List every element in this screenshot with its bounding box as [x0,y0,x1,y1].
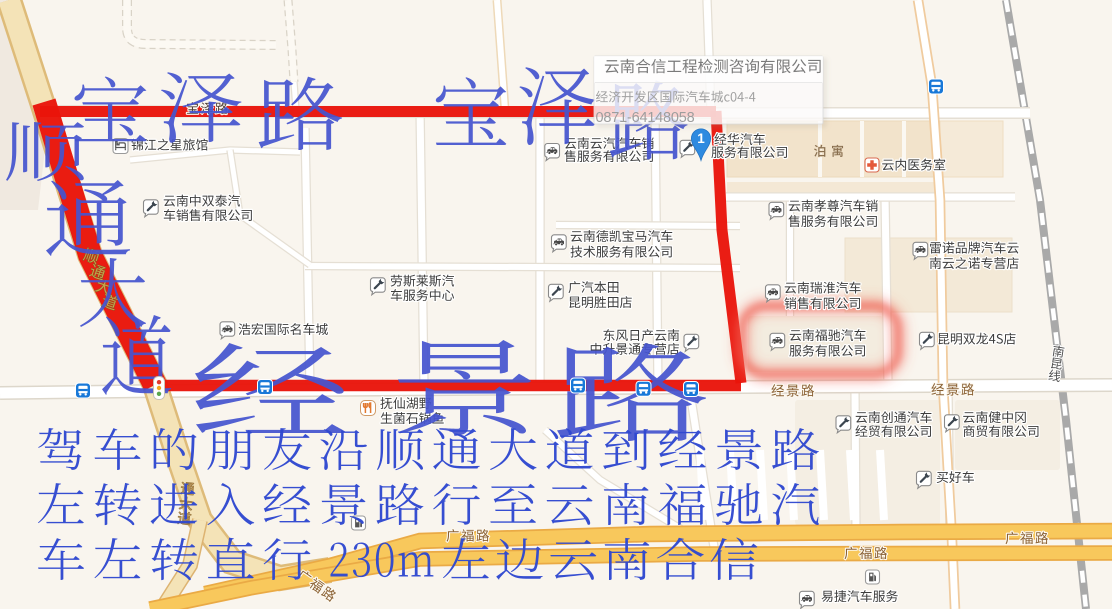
svg-text:1: 1 [697,131,705,146]
svg-text:0871-64148058: 0871-64148058 [596,110,695,126]
